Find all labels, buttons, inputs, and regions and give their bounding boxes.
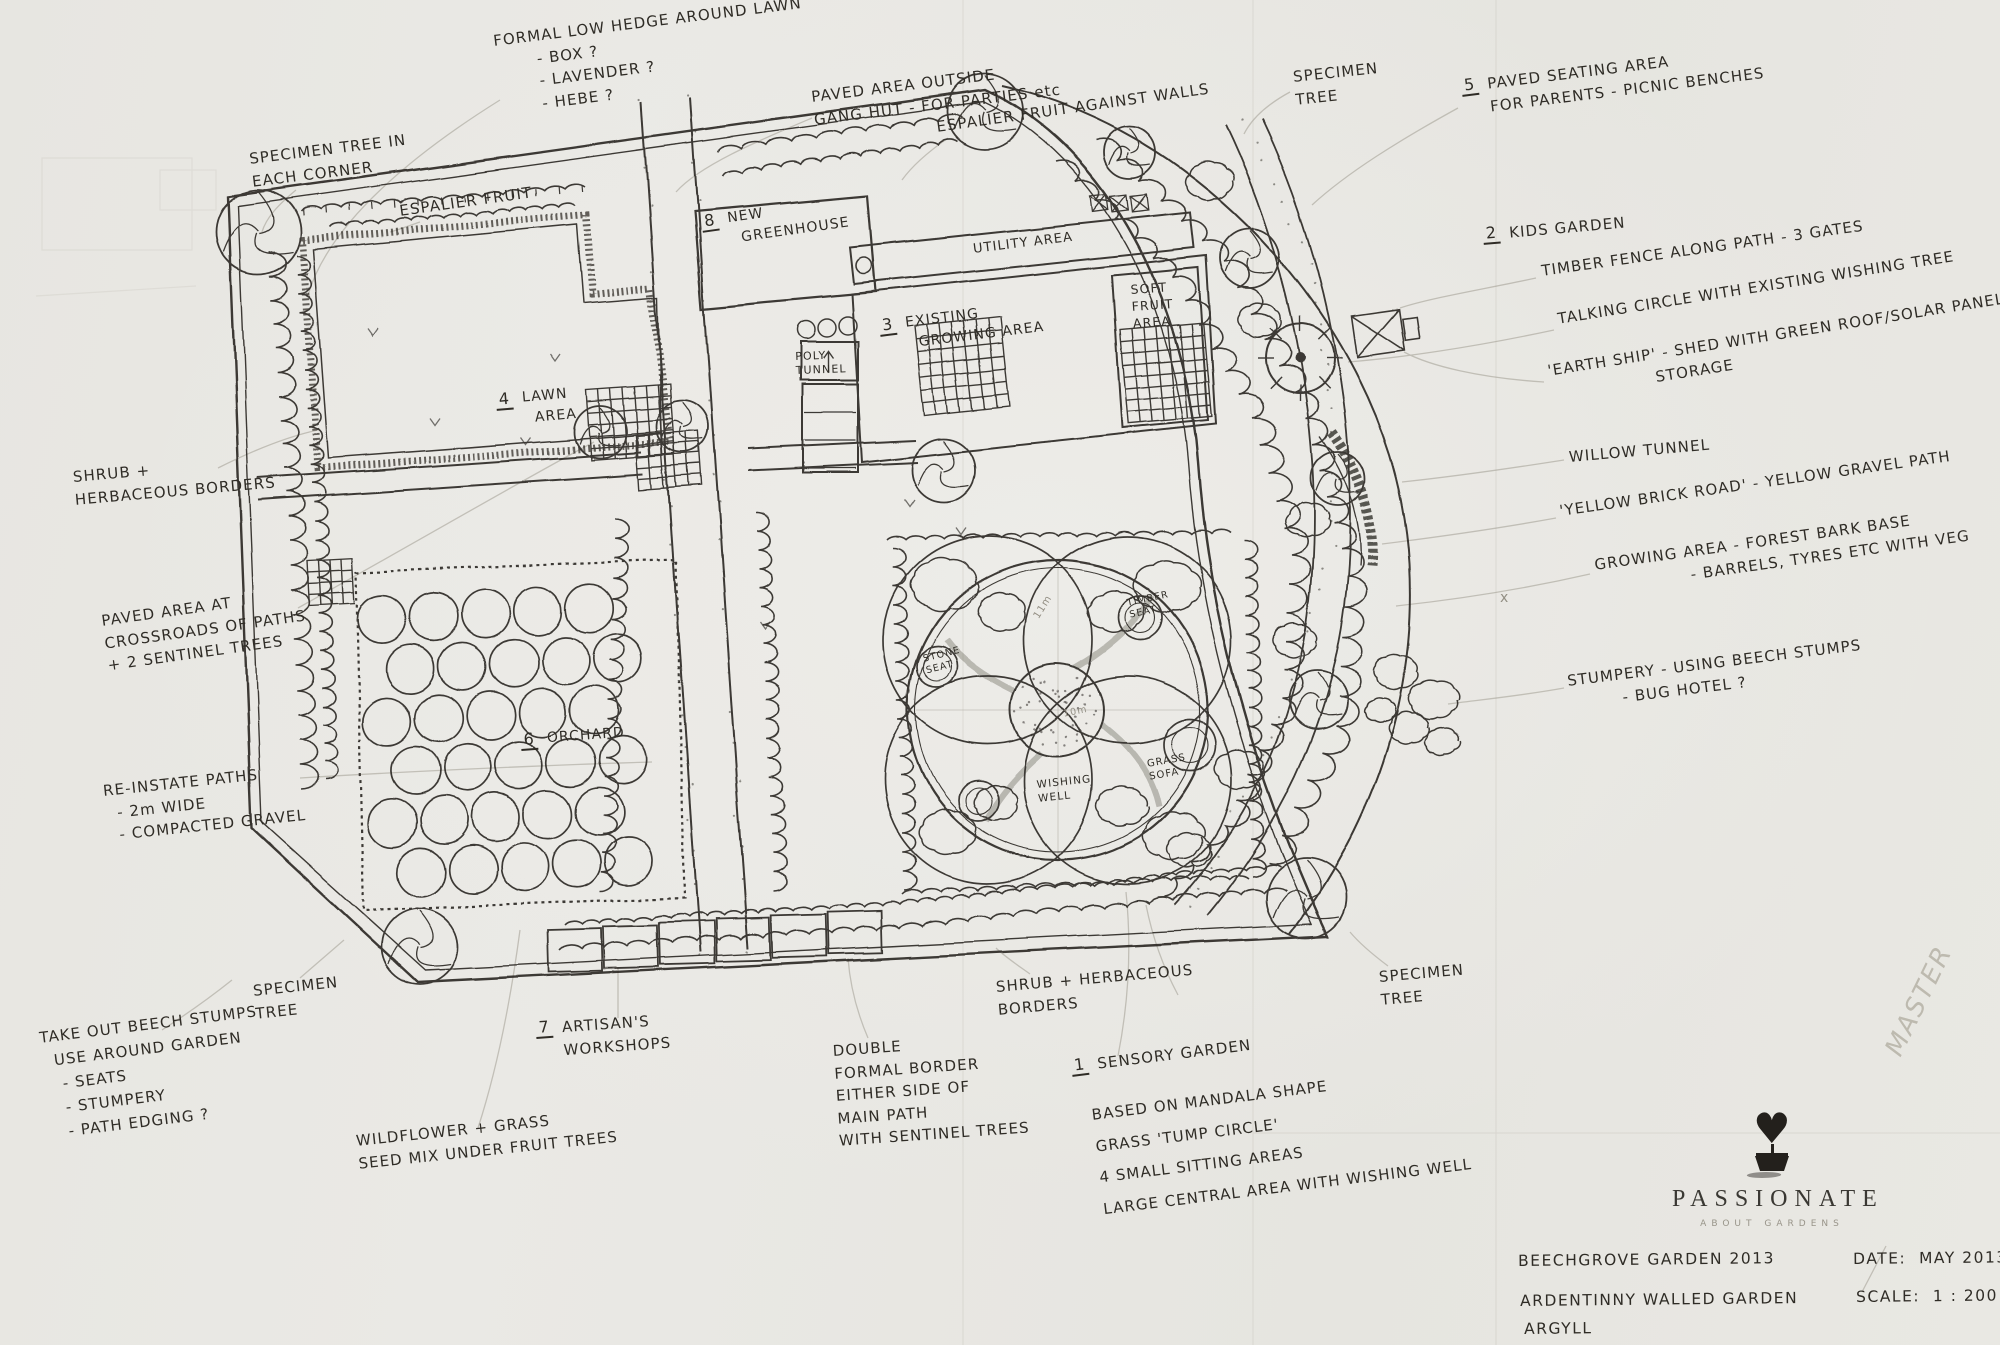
item-number: 4 (495, 388, 514, 411)
heart-topiary-icon: ♥ (1672, 1108, 1872, 1180)
annotation-specimen-tree-bottom-left: SPECIMEN TREE (252, 971, 342, 1025)
label-text: LAWN AREA (521, 383, 578, 429)
annotation-specimen-tree-top: SPECIMEN TREE (1292, 57, 1382, 111)
item-number: 2 (1482, 222, 1501, 245)
label-wishing-well: WISHING WELL (1036, 772, 1093, 806)
item-number: 8 (700, 210, 720, 233)
item-number: 6 (520, 729, 539, 751)
title-project: BEECHGROVE GARDEN 2013 (1518, 1247, 1775, 1273)
scanned-garden-plan-page: FORMAL LOW HEDGE AROUND LAWN - BOX ? - L… (0, 0, 2000, 1345)
item-number: 1 (1070, 1054, 1090, 1077)
annotation-artisans-workshops: 7 ARTISAN'S WORKSHOPS (535, 1009, 672, 1063)
logo-name: PASSIONATE (1672, 1186, 1872, 1213)
item-number: 3 (878, 314, 898, 337)
annotation-text: ARTISAN'S WORKSHOPS (561, 1009, 672, 1061)
title-date: DATE: MAY 2013 (1853, 1246, 2000, 1271)
item-number: 5 (1460, 74, 1480, 97)
title-region: ARGYLL (1524, 1317, 1593, 1341)
passionate-about-gardens-logo: ♥ PASSIONATE ABOUT GARDENS (1672, 1108, 1872, 1229)
topiary-shadow (1745, 1172, 1783, 1178)
label-poly-tunnel: POLY TUNNEL (795, 348, 847, 378)
item-number: 7 (535, 1017, 554, 1039)
pencil-x-mark: x (1500, 588, 1509, 609)
pencil-ghost-marks (36, 158, 216, 296)
title-site: ARDENTINNY WALLED GARDEN (1520, 1287, 1798, 1313)
heart-icon: ♥ (1753, 1108, 1791, 1150)
label-soft-fruit-area: SOFT FRUIT AREA (1130, 279, 1175, 332)
label-lawn-area: 4 LAWN AREA (495, 383, 578, 432)
annotation-double-border: DOUBLE FORMAL BORDER EITHER SIDE OF MAIN… (832, 1027, 1030, 1153)
annotation-specimen-tree-bottom-right: SPECIMEN TREE (1378, 959, 1467, 1011)
title-scale: SCALE: 1 : 200 (1856, 1285, 1998, 1310)
topiary-pot (1755, 1156, 1789, 1171)
logo-subtitle: ABOUT GARDENS (1672, 1219, 1872, 1229)
